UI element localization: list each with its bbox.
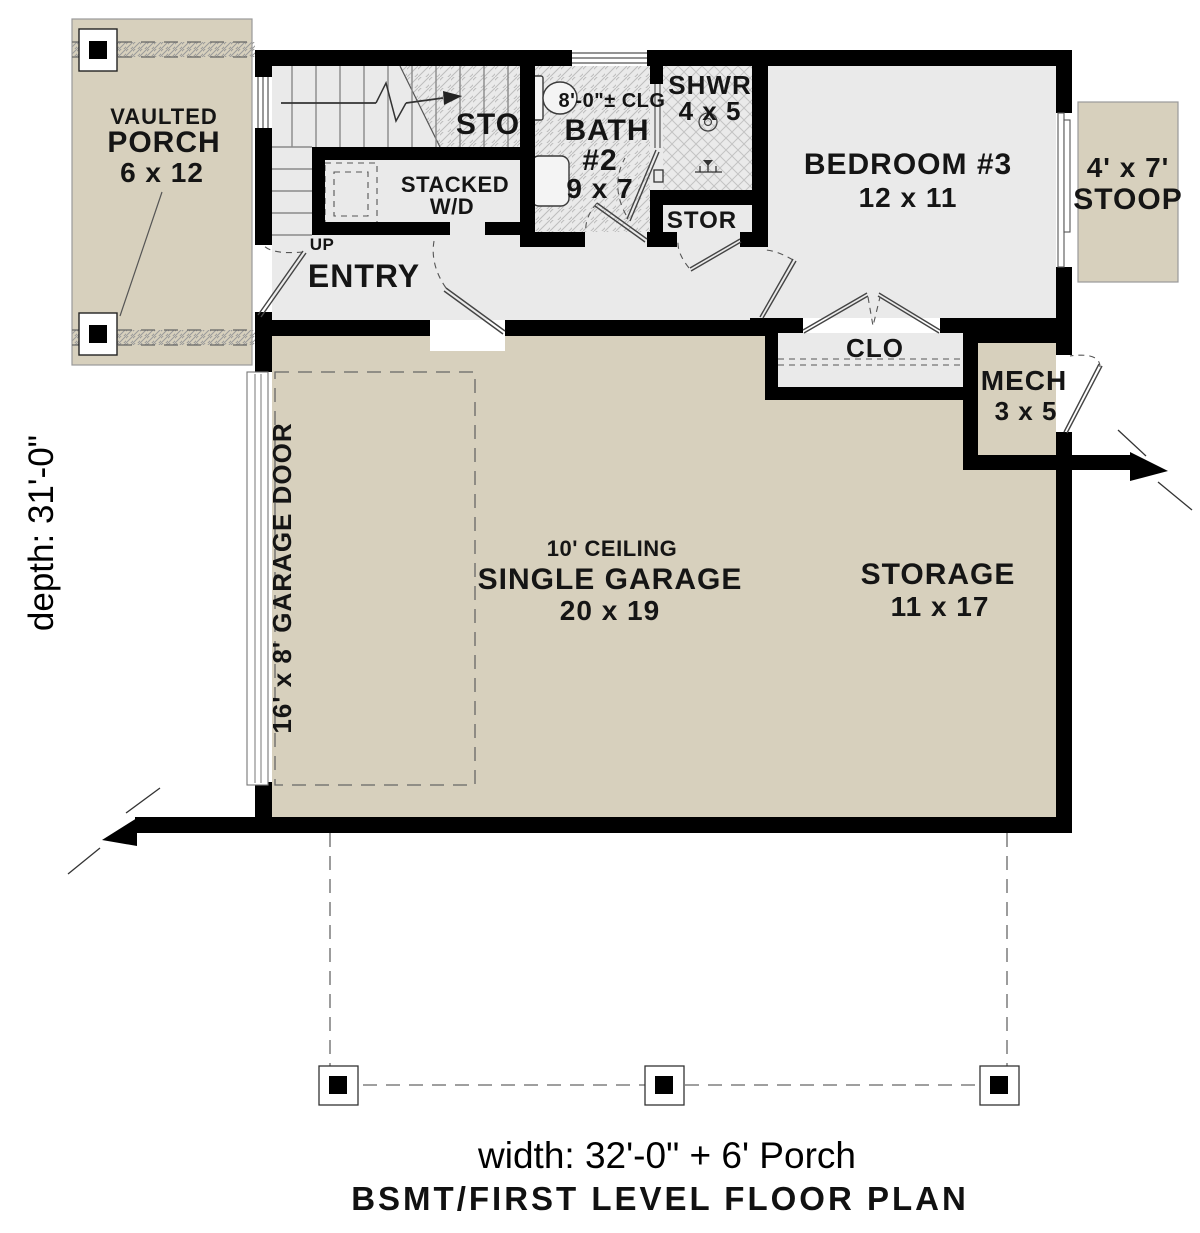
garage-dim: 20 x 19 bbox=[560, 595, 660, 626]
post-symbol bbox=[79, 29, 117, 71]
garage-door-panel bbox=[247, 372, 268, 785]
floor-plan-drawing: VAULTED PORCH 6 x 12 STO UP STACKED W/D … bbox=[0, 0, 1200, 1233]
post-symbol bbox=[79, 313, 117, 355]
post-symbol bbox=[980, 1066, 1019, 1105]
bedroom-label: BEDROOM #3 bbox=[804, 148, 1012, 181]
stairs-up-label: UP bbox=[310, 235, 335, 254]
bedroom-dim: 12 x 11 bbox=[859, 182, 958, 213]
entry-label: ENTRY bbox=[308, 258, 420, 294]
depth-dimension: depth: 31'-0" bbox=[22, 435, 61, 631]
stoop-dim: 4' x 7' bbox=[1087, 152, 1170, 183]
stoop-label: STOOP bbox=[1073, 183, 1182, 216]
bath-label-line1: BATH bbox=[564, 114, 649, 147]
mech-dim: 3 x 5 bbox=[995, 396, 1058, 426]
bath-ceiling-note: 8'-0"± CLG bbox=[559, 90, 666, 112]
porch-dim: 6 x 12 bbox=[120, 157, 204, 188]
post-symbol bbox=[319, 1066, 358, 1105]
bath-dim: 9 x 7 bbox=[566, 173, 633, 204]
garage-label: SINGLE GARAGE bbox=[478, 563, 743, 596]
floor-plan-page: VAULTED PORCH 6 x 12 STO UP STACKED W/D … bbox=[0, 0, 1200, 1233]
deck-posts bbox=[319, 1066, 1019, 1105]
garage-ceiling-note: 10' CEILING bbox=[547, 536, 678, 561]
stair-storage-label: STO bbox=[456, 108, 520, 141]
laundry-label-line2: W/D bbox=[430, 194, 474, 219]
window-top-wall bbox=[572, 50, 647, 66]
garage-door-label: 16' x 8' GARAGE DOOR bbox=[267, 422, 297, 733]
door-bedroom-stoop bbox=[1058, 113, 1070, 267]
porch-label-line2: PORCH bbox=[107, 126, 220, 159]
mech-label: MECH bbox=[981, 365, 1067, 396]
mech-exterior-door bbox=[1064, 355, 1102, 433]
storage-dim: 11 x 17 bbox=[891, 591, 990, 622]
closet-label: CLO bbox=[846, 333, 904, 363]
storage-label: STORAGE bbox=[861, 558, 1016, 591]
width-dimension: width: 32'-0" + 6' Porch bbox=[477, 1135, 856, 1176]
shower-dim: 4 x 5 bbox=[679, 96, 742, 126]
plan-title: BSMT/FIRST LEVEL FLOOR PLAN bbox=[351, 1180, 969, 1217]
window-porch-wall bbox=[255, 77, 272, 128]
post-symbol bbox=[645, 1066, 684, 1105]
stor-label: STOR bbox=[667, 207, 737, 234]
